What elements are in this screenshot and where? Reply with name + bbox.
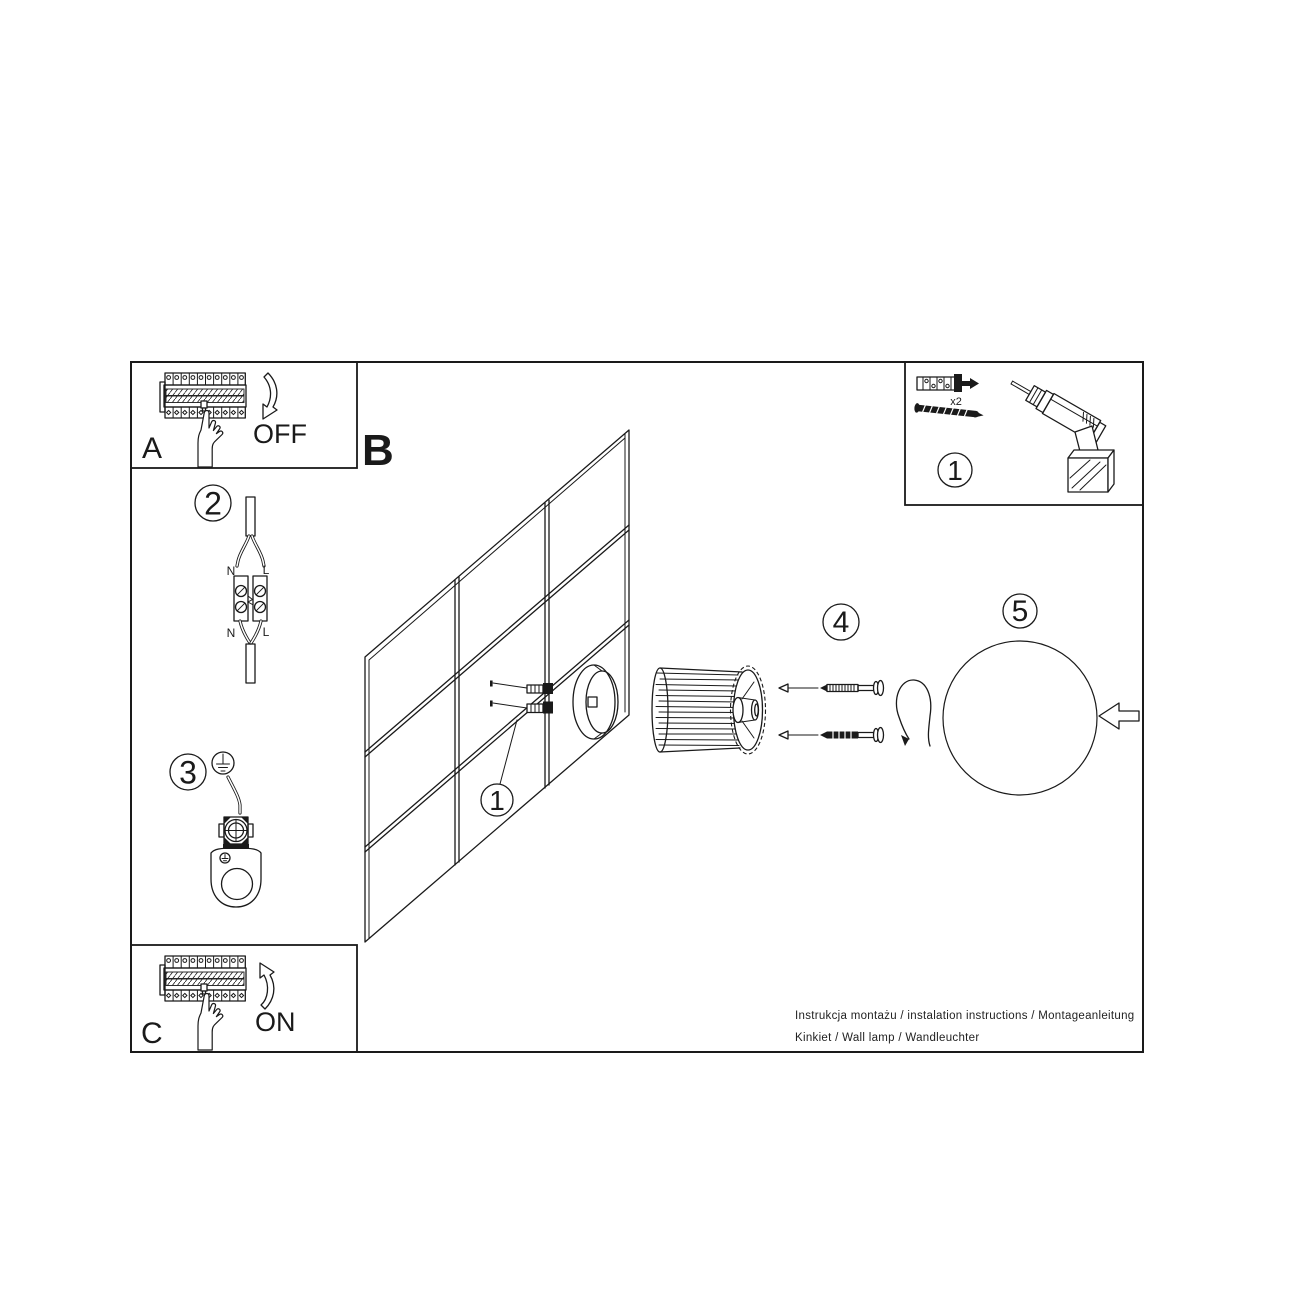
diagram-canvas: OFF A ON C x2 1 (0, 0, 1300, 1300)
terminal-bottom-l-label: L (263, 625, 270, 639)
cable-top (246, 497, 255, 536)
footer: Instrukcja montażu / instalation instruc… (795, 1010, 1134, 1044)
push-direction-arrow-icon (1099, 703, 1139, 729)
pointer-arrowhead-icon (779, 684, 788, 692)
ground-wire (228, 777, 240, 813)
step-5-badge: 5 (1012, 595, 1029, 628)
mounting-screw-icon (914, 403, 984, 420)
mounting-bracket (211, 848, 261, 907)
screw-1 (779, 681, 884, 696)
anchor-tip-1 (543, 683, 553, 694)
rotate-arrow-icon (896, 680, 930, 746)
sheet-frame (131, 362, 1143, 1052)
power-on-label: ON (255, 1007, 296, 1037)
step-2-badge: 2 (204, 486, 222, 522)
power-on-box: ON C (131, 945, 357, 1052)
power-off-box: OFF A (131, 362, 357, 468)
terminal-block (234, 576, 267, 621)
wires-bottom (240, 621, 261, 643)
drill-battery-side (1108, 450, 1114, 492)
wiring-step: 2 N L N L (195, 485, 270, 683)
anchor-tip-2 (543, 702, 553, 714)
wall-anchor-step: 1 (481, 720, 517, 816)
screw-step: 4 (779, 604, 884, 743)
terminal-top-l-label: L (263, 563, 270, 577)
ground-terminal (219, 817, 253, 849)
tools-step-badge: 1 (947, 455, 963, 486)
tools-box: x2 1 (905, 362, 1143, 505)
footer-line-1: Instrukcja montażu / instalation instruc… (795, 1010, 1134, 1022)
wall-plug-icon (917, 374, 979, 392)
ground-step: 3 (170, 752, 261, 907)
drill-battery-top (1068, 450, 1114, 458)
anchor-quantity-label: x2 (950, 396, 962, 408)
cable-bottom (246, 644, 255, 683)
wall-tile-line-v2 (545, 500, 549, 788)
power-off-label: OFF (253, 419, 307, 449)
shade-step: 5 (896, 594, 1139, 795)
badge-leader-line (500, 720, 517, 784)
step-4-badge: 4 (833, 606, 850, 639)
installation-instruction-sheet: OFF A ON C x2 1 (0, 0, 1300, 1300)
section-b-label: B (362, 426, 394, 475)
drill-icon (1006, 373, 1114, 492)
wall-step-badge: 1 (489, 785, 505, 816)
lamp-body (652, 666, 766, 754)
glass-globe (943, 641, 1097, 795)
ground-symbol-icon (212, 752, 234, 774)
box-a-label: A (142, 432, 162, 465)
screw-2 (779, 728, 884, 743)
canopy-plate (573, 665, 618, 739)
wires-top (237, 536, 264, 566)
arrow-down-icon (263, 373, 277, 419)
footer-line-2: Kinkiet / Wall lamp / Wandleuchter (795, 1032, 979, 1044)
arrow-up-icon (260, 963, 274, 1009)
wall-anchors (490, 681, 553, 714)
box-c-label: C (141, 1017, 163, 1050)
wall-tile-line-v1 (455, 577, 459, 865)
step-3-badge: 3 (179, 755, 197, 791)
pointer-arrowhead-icon (779, 731, 788, 739)
lamp-ribs (656, 673, 741, 746)
terminal-bottom-n-label: N (227, 626, 236, 640)
